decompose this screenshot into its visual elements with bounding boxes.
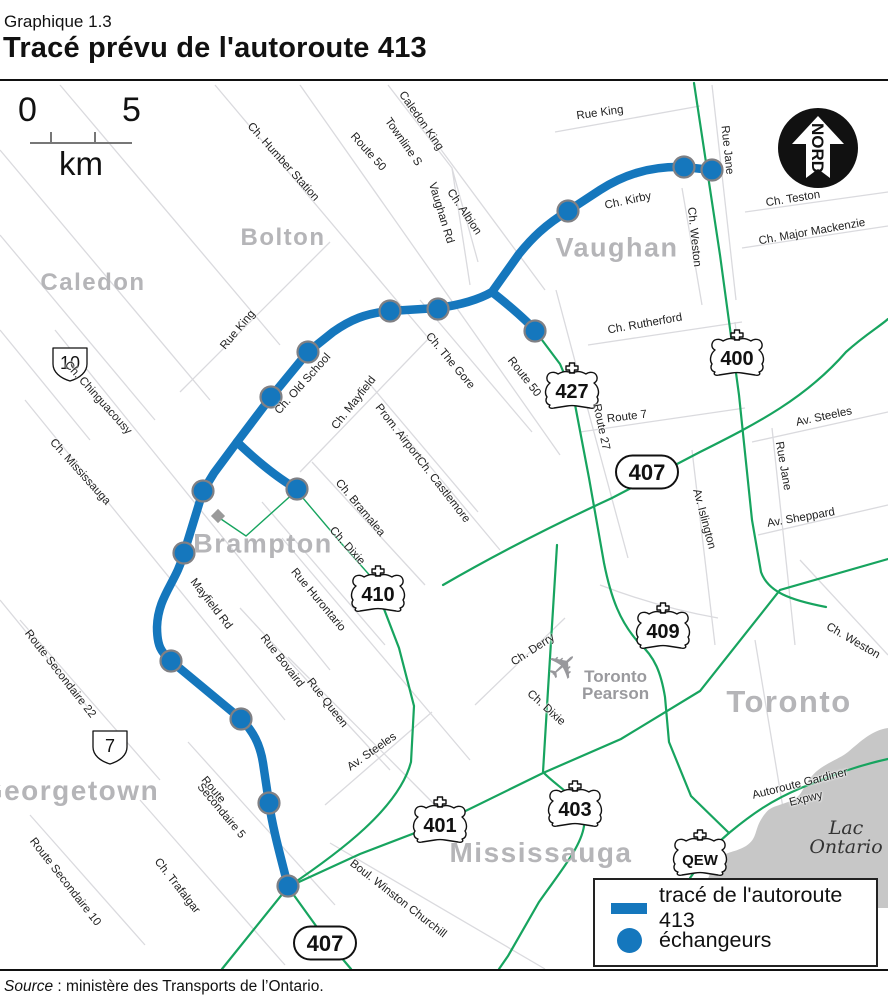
scale-unit: km — [30, 145, 132, 183]
shield-label: 410 — [361, 584, 394, 606]
highway-403-line — [499, 545, 584, 969]
interchange-marker — [231, 709, 252, 730]
interchange-marker — [287, 479, 308, 500]
interchange-dot-swatch — [617, 928, 642, 953]
highway-shield-7: 7 — [93, 731, 127, 764]
extension-connector-line — [218, 491, 373, 579]
shield-label: 401 — [423, 815, 456, 837]
scale-bar: 0 5 km — [0, 83, 170, 183]
legend-route-label: tracé de l'autoroute 413 — [659, 883, 876, 933]
interchange-marker — [428, 299, 449, 320]
north-arrow-label: NORD — [808, 123, 827, 173]
shield-label: 407 — [307, 931, 344, 956]
interchange-marker — [259, 793, 280, 814]
interchange-marker — [298, 342, 319, 363]
scale-tick — [50, 132, 52, 143]
shield-label: 403 — [558, 799, 591, 821]
interchange-marker — [278, 876, 299, 897]
interchange-layer — [161, 157, 723, 897]
scale-start: 0 — [18, 91, 37, 130]
page-title: Tracé prévu de l'autoroute 413 — [3, 32, 427, 65]
highway-shield-407: 407 — [616, 456, 678, 489]
highway-413-route — [157, 167, 712, 886]
shield-label: 427 — [555, 381, 588, 403]
highway-407-line — [443, 319, 888, 585]
shield-label: 10 — [60, 353, 80, 373]
legend-interchange-label: échangeurs — [659, 928, 771, 953]
highway-shield-407: 407 — [294, 927, 356, 960]
interchange-marker — [525, 321, 546, 342]
scale-line — [30, 142, 132, 144]
airplane-icon: ✈ — [537, 639, 590, 693]
shield-label: 407 — [629, 460, 666, 485]
interchange-marker — [380, 301, 401, 322]
interchange-marker — [558, 201, 579, 222]
interchange-marker — [161, 651, 182, 672]
north-arrow: NORD — [778, 108, 858, 188]
scale-end: 5 — [122, 91, 141, 130]
legend-row-route: tracé de l'autoroute 413 — [611, 892, 876, 924]
source-note: Source : ministère des Transports de l’O… — [4, 978, 324, 996]
source-word: Source — [4, 978, 53, 995]
route-line-swatch — [611, 903, 647, 914]
source-text: : ministère des Transports de l’Ontario. — [53, 978, 324, 995]
highway-shield-427: 427 — [546, 363, 599, 408]
figure-page: 400427410409401403QEW407407107 ✈ NORD To… — [0, 0, 888, 1005]
scale-tick — [94, 132, 96, 143]
interchange-marker — [174, 543, 195, 564]
interchange-marker — [193, 481, 214, 502]
route-main-line — [157, 167, 712, 886]
interchange-marker — [674, 157, 695, 178]
shield-label: 400 — [720, 348, 753, 370]
highway-shield-410: 410 — [352, 566, 405, 611]
legend: tracé de l'autoroute 413 échangeurs — [593, 878, 878, 967]
highway-shield-QEW: QEW — [674, 830, 727, 875]
figure-number: Graphique 1.3 — [4, 12, 112, 32]
interchange-marker — [702, 160, 723, 181]
highway-shield-400: 400 — [711, 330, 764, 375]
interchange-marker — [261, 387, 282, 408]
shield-label: 409 — [646, 621, 679, 643]
footer: Source : ministère des Transports de l’O… — [0, 969, 888, 1005]
highway-427-line — [536, 332, 729, 833]
highway-shield-401: 401 — [414, 797, 467, 842]
highway-shield-403: 403 — [549, 781, 602, 826]
highway-shield-10: 10 — [53, 348, 87, 381]
header: Graphique 1.3 Tracé prévu de l'autoroute… — [0, 0, 888, 81]
shield-label: QEW — [682, 852, 719, 869]
shield-label: 7 — [105, 736, 115, 756]
highway-shield-409: 409 — [637, 603, 690, 648]
